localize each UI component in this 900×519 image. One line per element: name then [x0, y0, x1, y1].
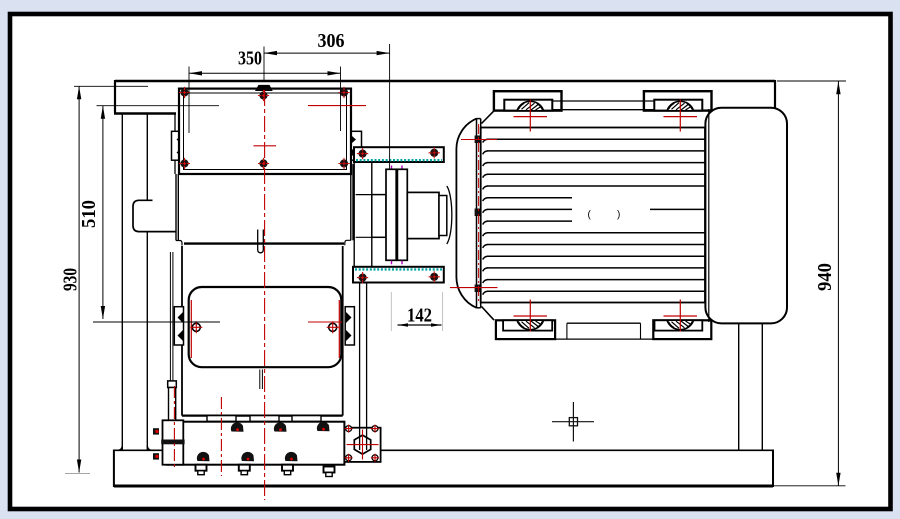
svg-text:306: 306: [318, 30, 345, 52]
svg-text:): ): [617, 210, 620, 221]
svg-text:142: 142: [407, 305, 432, 327]
svg-text:350: 350: [238, 48, 262, 70]
svg-text:930: 930: [60, 268, 82, 291]
svg-text:940: 940: [814, 263, 836, 291]
svg-text:510: 510: [78, 200, 100, 228]
